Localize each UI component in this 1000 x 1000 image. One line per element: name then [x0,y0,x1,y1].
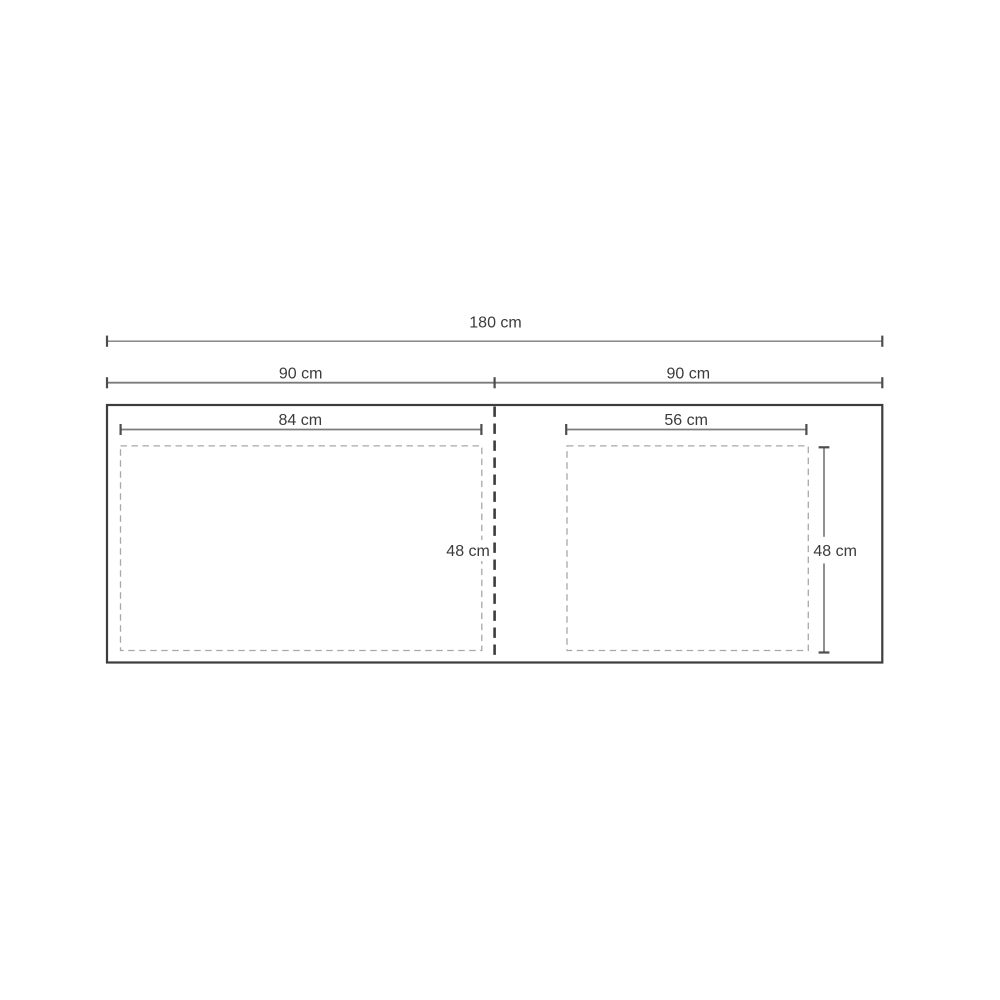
svg-text:180 cm: 180 cm [469,315,521,332]
svg-text:90 cm: 90 cm [279,365,323,382]
svg-text:48 cm: 48 cm [446,543,490,560]
svg-text:48 cm: 48 cm [813,543,857,560]
svg-text:84 cm: 84 cm [279,412,323,429]
svg-text:56 cm: 56 cm [664,412,708,429]
svg-text:90 cm: 90 cm [667,365,711,382]
